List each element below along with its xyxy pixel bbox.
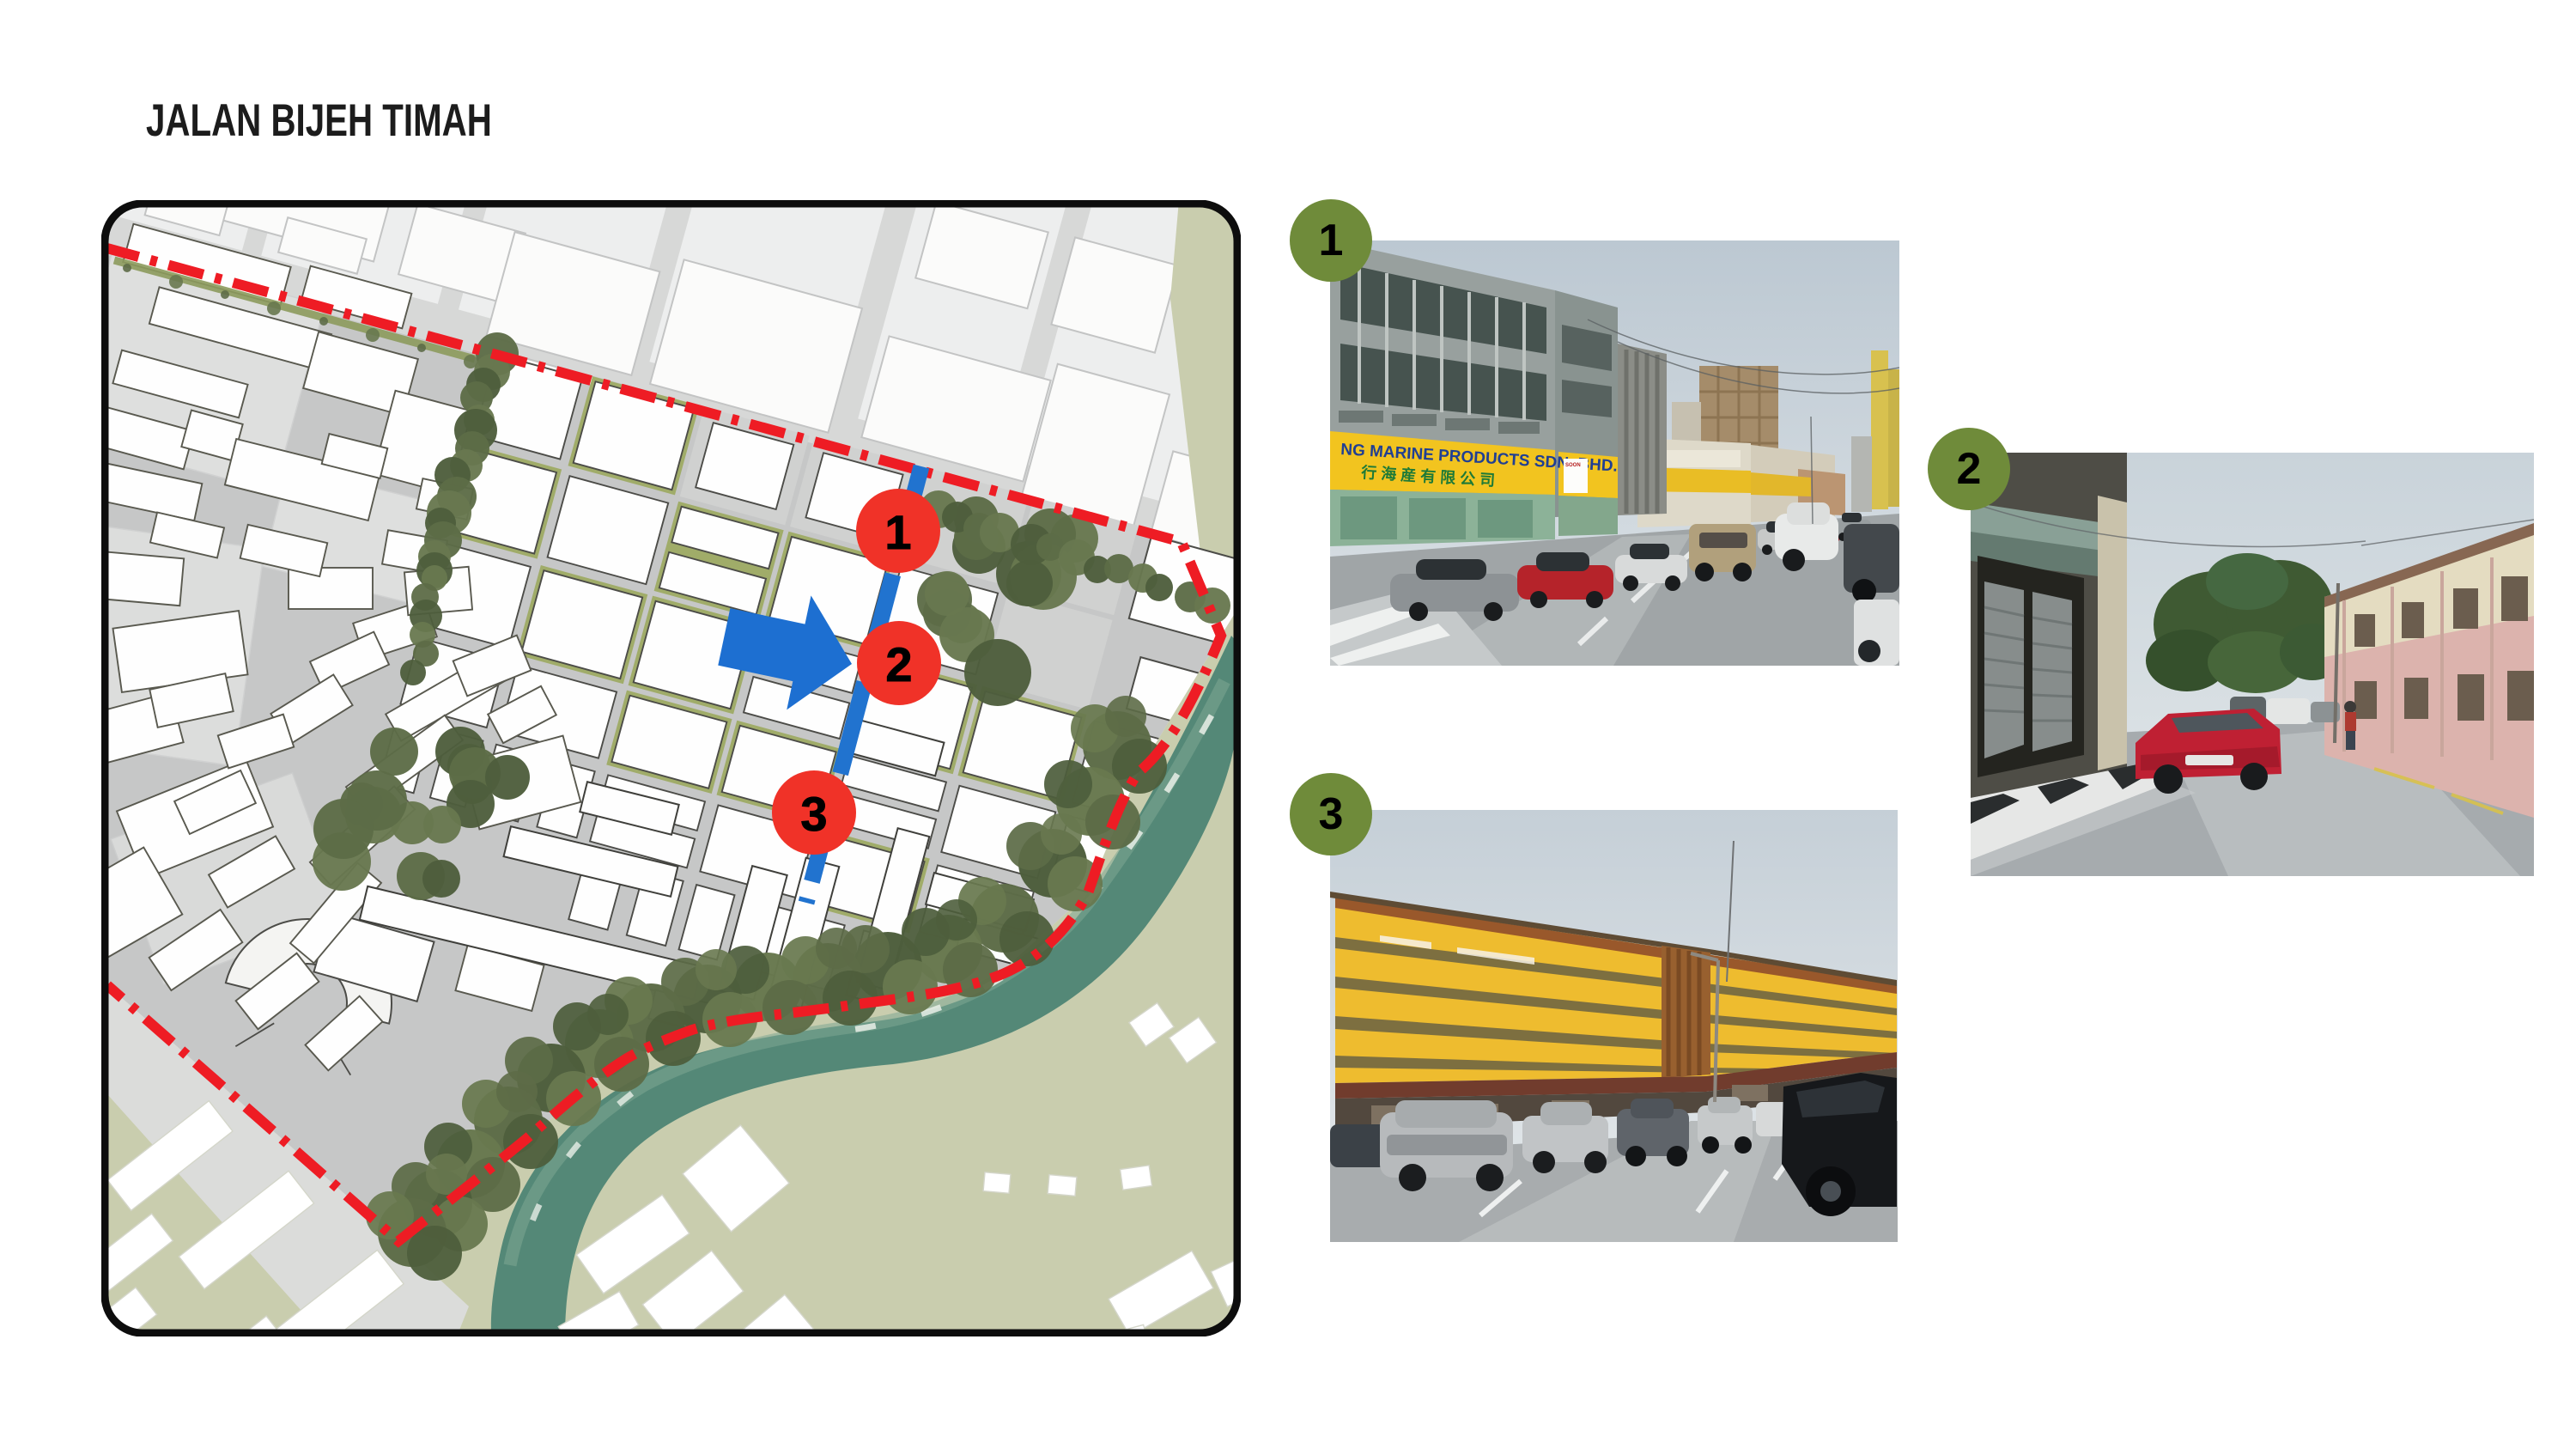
svg-text:3: 3 <box>800 787 827 841</box>
svg-text:2: 2 <box>885 637 912 691</box>
svg-text:SOON: SOON <box>1565 463 1581 468</box>
svg-text:1: 1 <box>884 505 911 559</box>
